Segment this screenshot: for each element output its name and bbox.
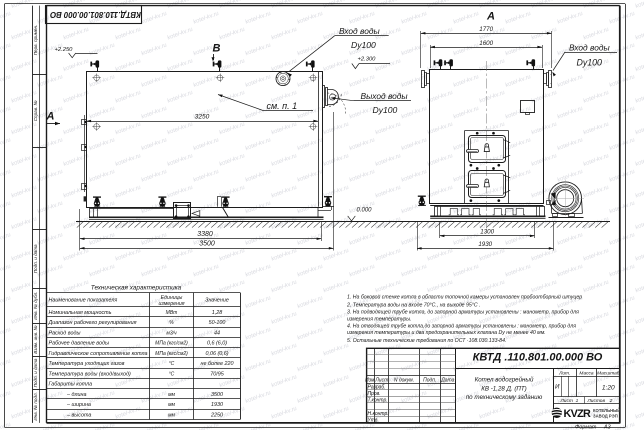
svg-text:1,28: 1,28	[212, 310, 223, 316]
svg-text:2. Температура воды на входе: 2. Температура воды на входе 70°С., на в…	[346, 302, 480, 308]
svg-text:+2.300: +2.300	[358, 57, 377, 63]
svg-text:Температура уходящих газов: Температура уходящих газов	[49, 361, 125, 367]
svg-text:1300: 1300	[480, 229, 494, 236]
svg-text:КВТД .110.801.00.000 ВО: КВТД .110.801.00.000 ВО	[473, 352, 603, 364]
svg-text:КОТЕЛЬНЫЙ: КОТЕЛЬНЫЙ	[593, 408, 620, 413]
svg-text:Изм: Изм	[365, 377, 375, 383]
svg-text:Подп. и дата: Подп. и дата	[33, 244, 38, 273]
svg-text:Взам. инв. №: Взам. инв. №	[33, 325, 38, 353]
svg-text:А: А	[486, 11, 495, 23]
svg-text:А3: А3	[603, 424, 611, 430]
svg-text:2: 2	[609, 398, 613, 404]
svg-text:Лит.: Лит.	[558, 371, 570, 377]
svg-text:А: А	[46, 111, 55, 123]
svg-text:4. На отводящей трубе котла,д: 4. На отводящей трубе котла,до запорной …	[347, 322, 576, 329]
svg-text:Формат: Формат	[575, 424, 597, 430]
svg-text:Масштаб: Масштаб	[597, 371, 620, 377]
svg-text:измерения: измерения	[159, 301, 185, 307]
svg-text:Котел водогрейный: Котел водогрейный	[475, 377, 534, 384]
svg-text:1600: 1600	[479, 40, 493, 47]
svg-text:3250: 3250	[195, 113, 210, 120]
svg-text:5. Остальные технические треб: 5. Остальные технические требования по О…	[347, 338, 506, 344]
svg-text:2250: 2250	[210, 412, 223, 418]
svg-text:И: И	[555, 383, 560, 390]
svg-text:мм: мм	[168, 412, 175, 418]
svg-text:МПа (кгс/см2): МПа (кгс/см2)	[155, 351, 188, 357]
svg-text:Лист: Лист	[560, 398, 573, 404]
svg-text:м3/ч: м3/ч	[166, 330, 177, 336]
svg-text:+2.250: +2.250	[55, 47, 74, 53]
svg-text:Выход воды: Выход воды	[361, 91, 408, 101]
svg-text:°С: °С	[169, 371, 175, 377]
svg-text:КВ -1,28 Д. (ПТ): КВ -1,28 Д. (ПТ)	[481, 385, 527, 392]
svg-text:мм: мм	[168, 402, 175, 408]
svg-text:Вход воды: Вход воды	[569, 42, 610, 52]
svg-text:МПа (кгс/см2): МПа (кгс/см2)	[155, 341, 188, 347]
svg-text:Техническая характеристика: Техническая характеристика	[91, 285, 182, 292]
svg-text:3500: 3500	[211, 392, 223, 398]
svg-text:Пров.: Пров.	[368, 391, 381, 397]
svg-text:– ширина: – ширина	[66, 402, 91, 408]
svg-text:Справ. №: Справ. №	[33, 100, 38, 121]
svg-text:3. На подводящей трубе котла,: 3. На подводящей трубе котла, до запорно…	[347, 309, 579, 316]
svg-text:Гидравлическое сопротивление к: Гидравлическое сопротивление котла	[49, 351, 148, 357]
svg-text:мм: мм	[168, 392, 175, 398]
svg-text:%: %	[169, 320, 174, 326]
svg-text:3380: 3380	[197, 231, 213, 238]
svg-text:Утв.: Утв.	[368, 417, 379, 423]
svg-text:Наименование показателя: Наименование показателя	[49, 298, 118, 304]
svg-text:70/95: 70/95	[210, 371, 224, 377]
svg-text:Листов: Листов	[587, 398, 606, 404]
svg-text:Дата: Дата	[440, 377, 454, 383]
svg-text:– длина: – длина	[66, 392, 86, 398]
svg-text:измерения температуры и два пр: измерения температуры и два предохраните…	[347, 330, 546, 336]
svg-text:Подп. и дата: Подп. и дата	[33, 358, 38, 387]
svg-text:Номинальная мощность: Номинальная мощность	[49, 310, 112, 316]
svg-text:1930: 1930	[478, 241, 492, 248]
svg-text:Значение: Значение	[205, 298, 229, 304]
svg-text:3500: 3500	[199, 241, 215, 248]
svg-text:°С: °С	[169, 361, 175, 367]
svg-text:Рабочее давление воды: Рабочее давление воды	[49, 341, 109, 347]
svg-text:Диапазон рабочего регулировани: Диапазон рабочего регулирования	[48, 320, 137, 326]
svg-text:Лист: Лист	[374, 377, 388, 383]
svg-text:Вход воды: Вход воды	[339, 26, 380, 36]
svg-text:Масса: Масса	[579, 371, 594, 377]
svg-text:Dy100: Dy100	[373, 105, 398, 115]
svg-text:Разраб.: Разраб.	[368, 384, 386, 390]
svg-text:МВт: МВт	[166, 310, 178, 316]
svg-text:Т.контр.: Т.контр.	[368, 398, 388, 404]
svg-text:50-100: 50-100	[209, 320, 226, 326]
svg-text:1930: 1930	[211, 402, 223, 408]
svg-text:не более 220: не более 220	[201, 361, 234, 367]
svg-text:1:20: 1:20	[602, 385, 615, 392]
svg-text:Инв. № подл.: Инв. № подл.	[33, 392, 38, 421]
svg-text:Подп.: Подп.	[423, 377, 436, 383]
svg-text:Н.контр.: Н.контр.	[368, 411, 389, 417]
svg-text:см. п. 1: см. п. 1	[267, 101, 298, 111]
svg-text:N докум.: N докум.	[394, 377, 414, 383]
svg-text:Dy100: Dy100	[351, 40, 376, 50]
svg-text:1770: 1770	[479, 26, 493, 33]
svg-text:0,06 (0,6): 0,06 (0,6)	[205, 351, 228, 357]
svg-text:Габариты котла: Габариты котла	[49, 382, 93, 388]
svg-text:44: 44	[214, 330, 220, 336]
svg-text:KVZR: KVZR	[564, 408, 591, 420]
svg-text:Перв. примен.: Перв. примен.	[33, 25, 38, 56]
svg-text:– высота: – высота	[66, 412, 91, 418]
svg-text:измерения температуры.: измерения температуры.	[347, 316, 412, 322]
svg-text:ЗАВОД РЭП: ЗАВОД РЭП	[593, 414, 618, 419]
svg-text:1. На боковой стенке котла в: 1. На боковой стенке котла в области топ…	[347, 294, 582, 301]
svg-text:0,6 (6,0): 0,6 (6,0)	[207, 341, 227, 347]
svg-text:по техническому заданию: по техническому заданию	[466, 394, 543, 401]
svg-text:0.000: 0.000	[357, 208, 373, 214]
svg-text:Температура воды (вход/выход): Температура воды (вход/выход)	[49, 371, 132, 377]
svg-text:КВТД.110.801.00.000 ВО: КВТД.110.801.00.000 ВО	[50, 10, 141, 19]
svg-text:1: 1	[576, 398, 579, 404]
svg-text:Инв. № дубл.: Инв. № дубл.	[33, 291, 38, 319]
svg-text:Dy100: Dy100	[577, 57, 603, 67]
svg-text:В: В	[213, 43, 221, 55]
svg-text:Расход воды: Расход воды	[49, 330, 81, 336]
